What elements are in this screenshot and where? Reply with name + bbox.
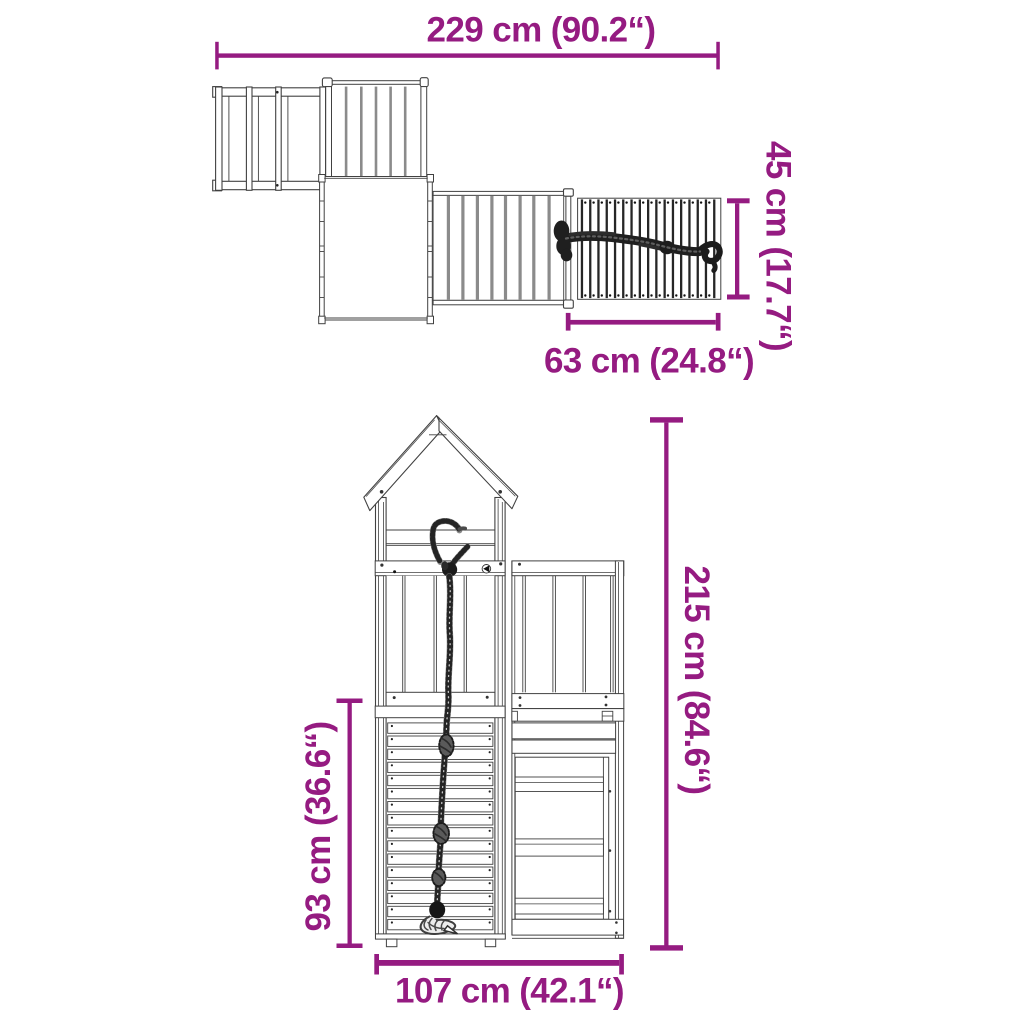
svg-text:93 cm (36.6“): 93 cm (36.6“) xyxy=(299,721,338,931)
svg-text:215 cm (84.6“): 215 cm (84.6“) xyxy=(677,566,716,795)
svg-text:107 cm (42.1“): 107 cm (42.1“) xyxy=(395,972,624,1011)
svg-text:229 cm (90.2“): 229 cm (90.2“) xyxy=(427,11,656,50)
svg-text:45 cm (17.7“): 45 cm (17.7“) xyxy=(759,141,798,351)
svg-text:63 cm (24.8“): 63 cm (24.8“) xyxy=(544,342,754,381)
